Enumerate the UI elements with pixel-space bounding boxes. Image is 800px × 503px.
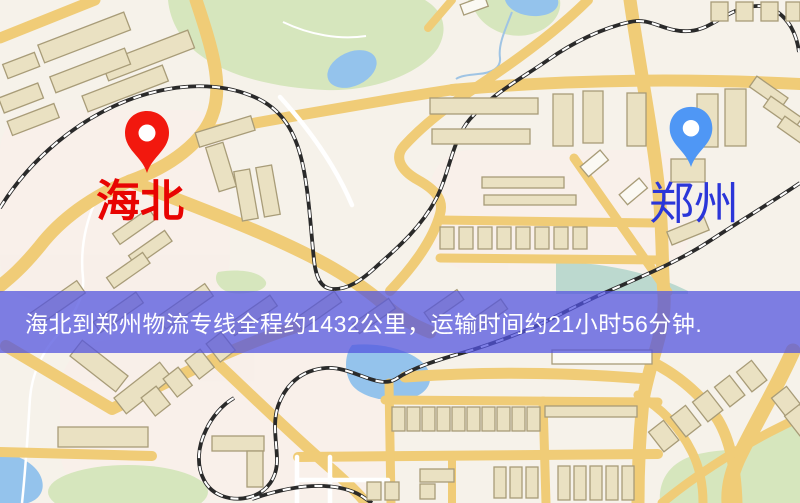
destination-label: 郑州 (649, 178, 739, 229)
logistics-map-view[interactable]: 海北 郑州 海北到郑州物流专线全程约1432公里，运输时间约21小时56分钟. (0, 0, 800, 503)
route-info-text: 海北到郑州物流专线全程约1432公里，运输时间约21小时56分钟. (25, 305, 702, 339)
map-canvas[interactable]: 海北 郑州 (0, 0, 800, 503)
origin-label: 海北 (96, 177, 184, 226)
route-info-banner: 海北到郑州物流专线全程约1432公里，运输时间约21小时56分钟. (0, 291, 800, 353)
origin-pin-hole (139, 125, 156, 142)
destination-pin-hole (683, 120, 699, 136)
